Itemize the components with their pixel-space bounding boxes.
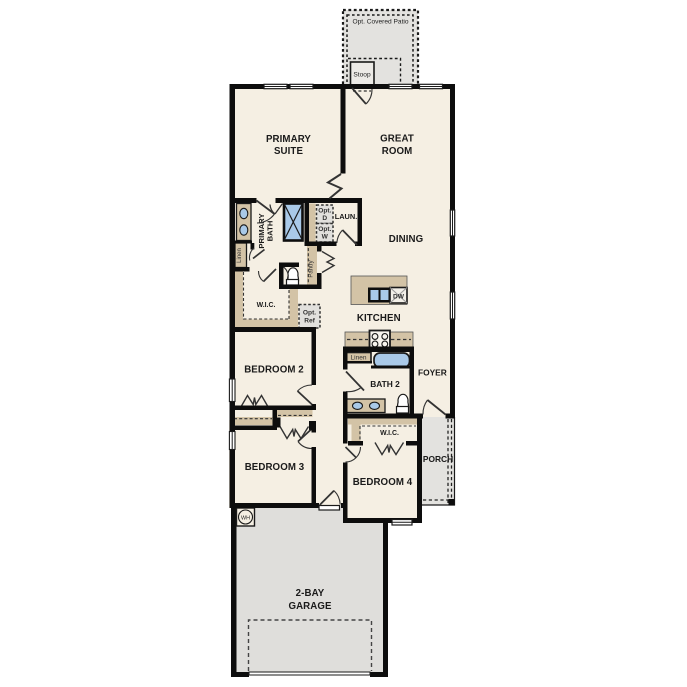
svg-text:FOYER: FOYER	[418, 368, 447, 378]
svg-text:W.I.C.: W.I.C.	[257, 302, 276, 309]
svg-text:BEDROOM 2: BEDROOM 2	[244, 365, 304, 376]
svg-text:LAUN.: LAUN.	[335, 212, 358, 221]
svg-text:D: D	[322, 215, 327, 222]
svg-text:GARAGE: GARAGE	[288, 601, 332, 612]
svg-text:ROOM: ROOM	[382, 146, 413, 157]
svg-text:GREAT: GREAT	[380, 134, 414, 145]
svg-text:Opt.: Opt.	[318, 226, 331, 233]
svg-text:KITCHEN: KITCHEN	[357, 313, 401, 324]
svg-text:W.I.C.: W.I.C.	[380, 430, 399, 437]
svg-text:BEDROOM 4: BEDROOM 4	[353, 477, 413, 488]
svg-text:Pantry: Pantry	[308, 260, 314, 277]
svg-text:PRIMARY: PRIMARY	[266, 134, 311, 145]
svg-text:W: W	[322, 234, 329, 241]
svg-text:BATH: BATH	[266, 220, 275, 241]
svg-text:Opt. Covered Patio: Opt. Covered Patio	[352, 19, 408, 26]
svg-text:BATH 2: BATH 2	[370, 379, 400, 389]
svg-text:WH: WH	[241, 516, 250, 522]
svg-text:Stoop: Stoop	[353, 72, 371, 79]
svg-text:BEDROOM 3: BEDROOM 3	[245, 462, 305, 473]
svg-text:Opt.: Opt.	[318, 208, 331, 215]
svg-text:Linen: Linen	[237, 248, 243, 263]
svg-text:Ref: Ref	[304, 318, 315, 325]
svg-text:SUITE: SUITE	[274, 146, 303, 157]
svg-text:DINING: DINING	[389, 234, 424, 245]
svg-text:2-BAY: 2-BAY	[296, 588, 325, 599]
svg-text:Opt.: Opt.	[303, 310, 316, 317]
svg-text:PORCH: PORCH	[423, 454, 453, 464]
svg-text:Linen: Linen	[351, 354, 367, 361]
svg-text:DW: DW	[393, 294, 405, 301]
